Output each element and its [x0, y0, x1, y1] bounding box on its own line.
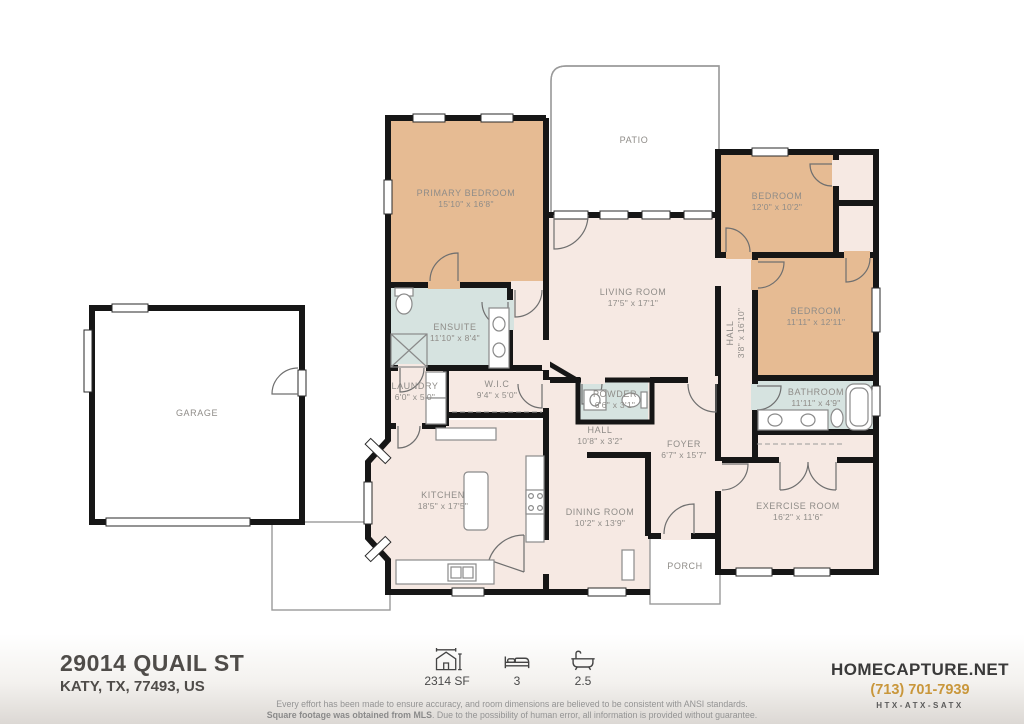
address-line1: 29014 QUAIL ST [60, 650, 244, 677]
brand-name: HOMECAPTURE.NET [831, 660, 1009, 680]
floor-plan-page: GARAGE PATIO PORCH PRIMARY BEDROOM15'10"… [0, 0, 1024, 724]
room-fills [92, 118, 876, 604]
brand-phone: (713) 701-7939 [831, 682, 1009, 698]
property-address: 29014 QUAIL ST KATY, TX, 77493, US [60, 650, 244, 695]
disclaimer-line2: Square footage was obtained from MLS. Du… [267, 710, 757, 721]
brand-block: HOMECAPTURE.NET (713) 701-7939 HTX-ATX-S… [831, 660, 1009, 710]
bedrooms-value: 3 [503, 674, 531, 688]
address-line2: KATY, TX, 77493, US [60, 678, 244, 695]
sqft-icon [432, 648, 462, 672]
bathrooms-value: 2.5 [569, 674, 597, 688]
brand-regions: HTX-ATX-SATX [831, 701, 1009, 710]
disclaimer-line1: Every effort has been made to ensure acc… [267, 699, 757, 710]
stat-bathrooms: 2.5 [569, 648, 597, 688]
disclaimer: Every effort has been made to ensure acc… [267, 699, 757, 722]
sqft-value: 2314 SF [424, 674, 469, 688]
stat-square-footage: 2314 SF [424, 648, 469, 688]
bath-icon [569, 648, 597, 672]
bed-icon [503, 648, 531, 672]
stat-bedrooms: 3 [503, 648, 531, 688]
floor-plan [0, 0, 1024, 640]
